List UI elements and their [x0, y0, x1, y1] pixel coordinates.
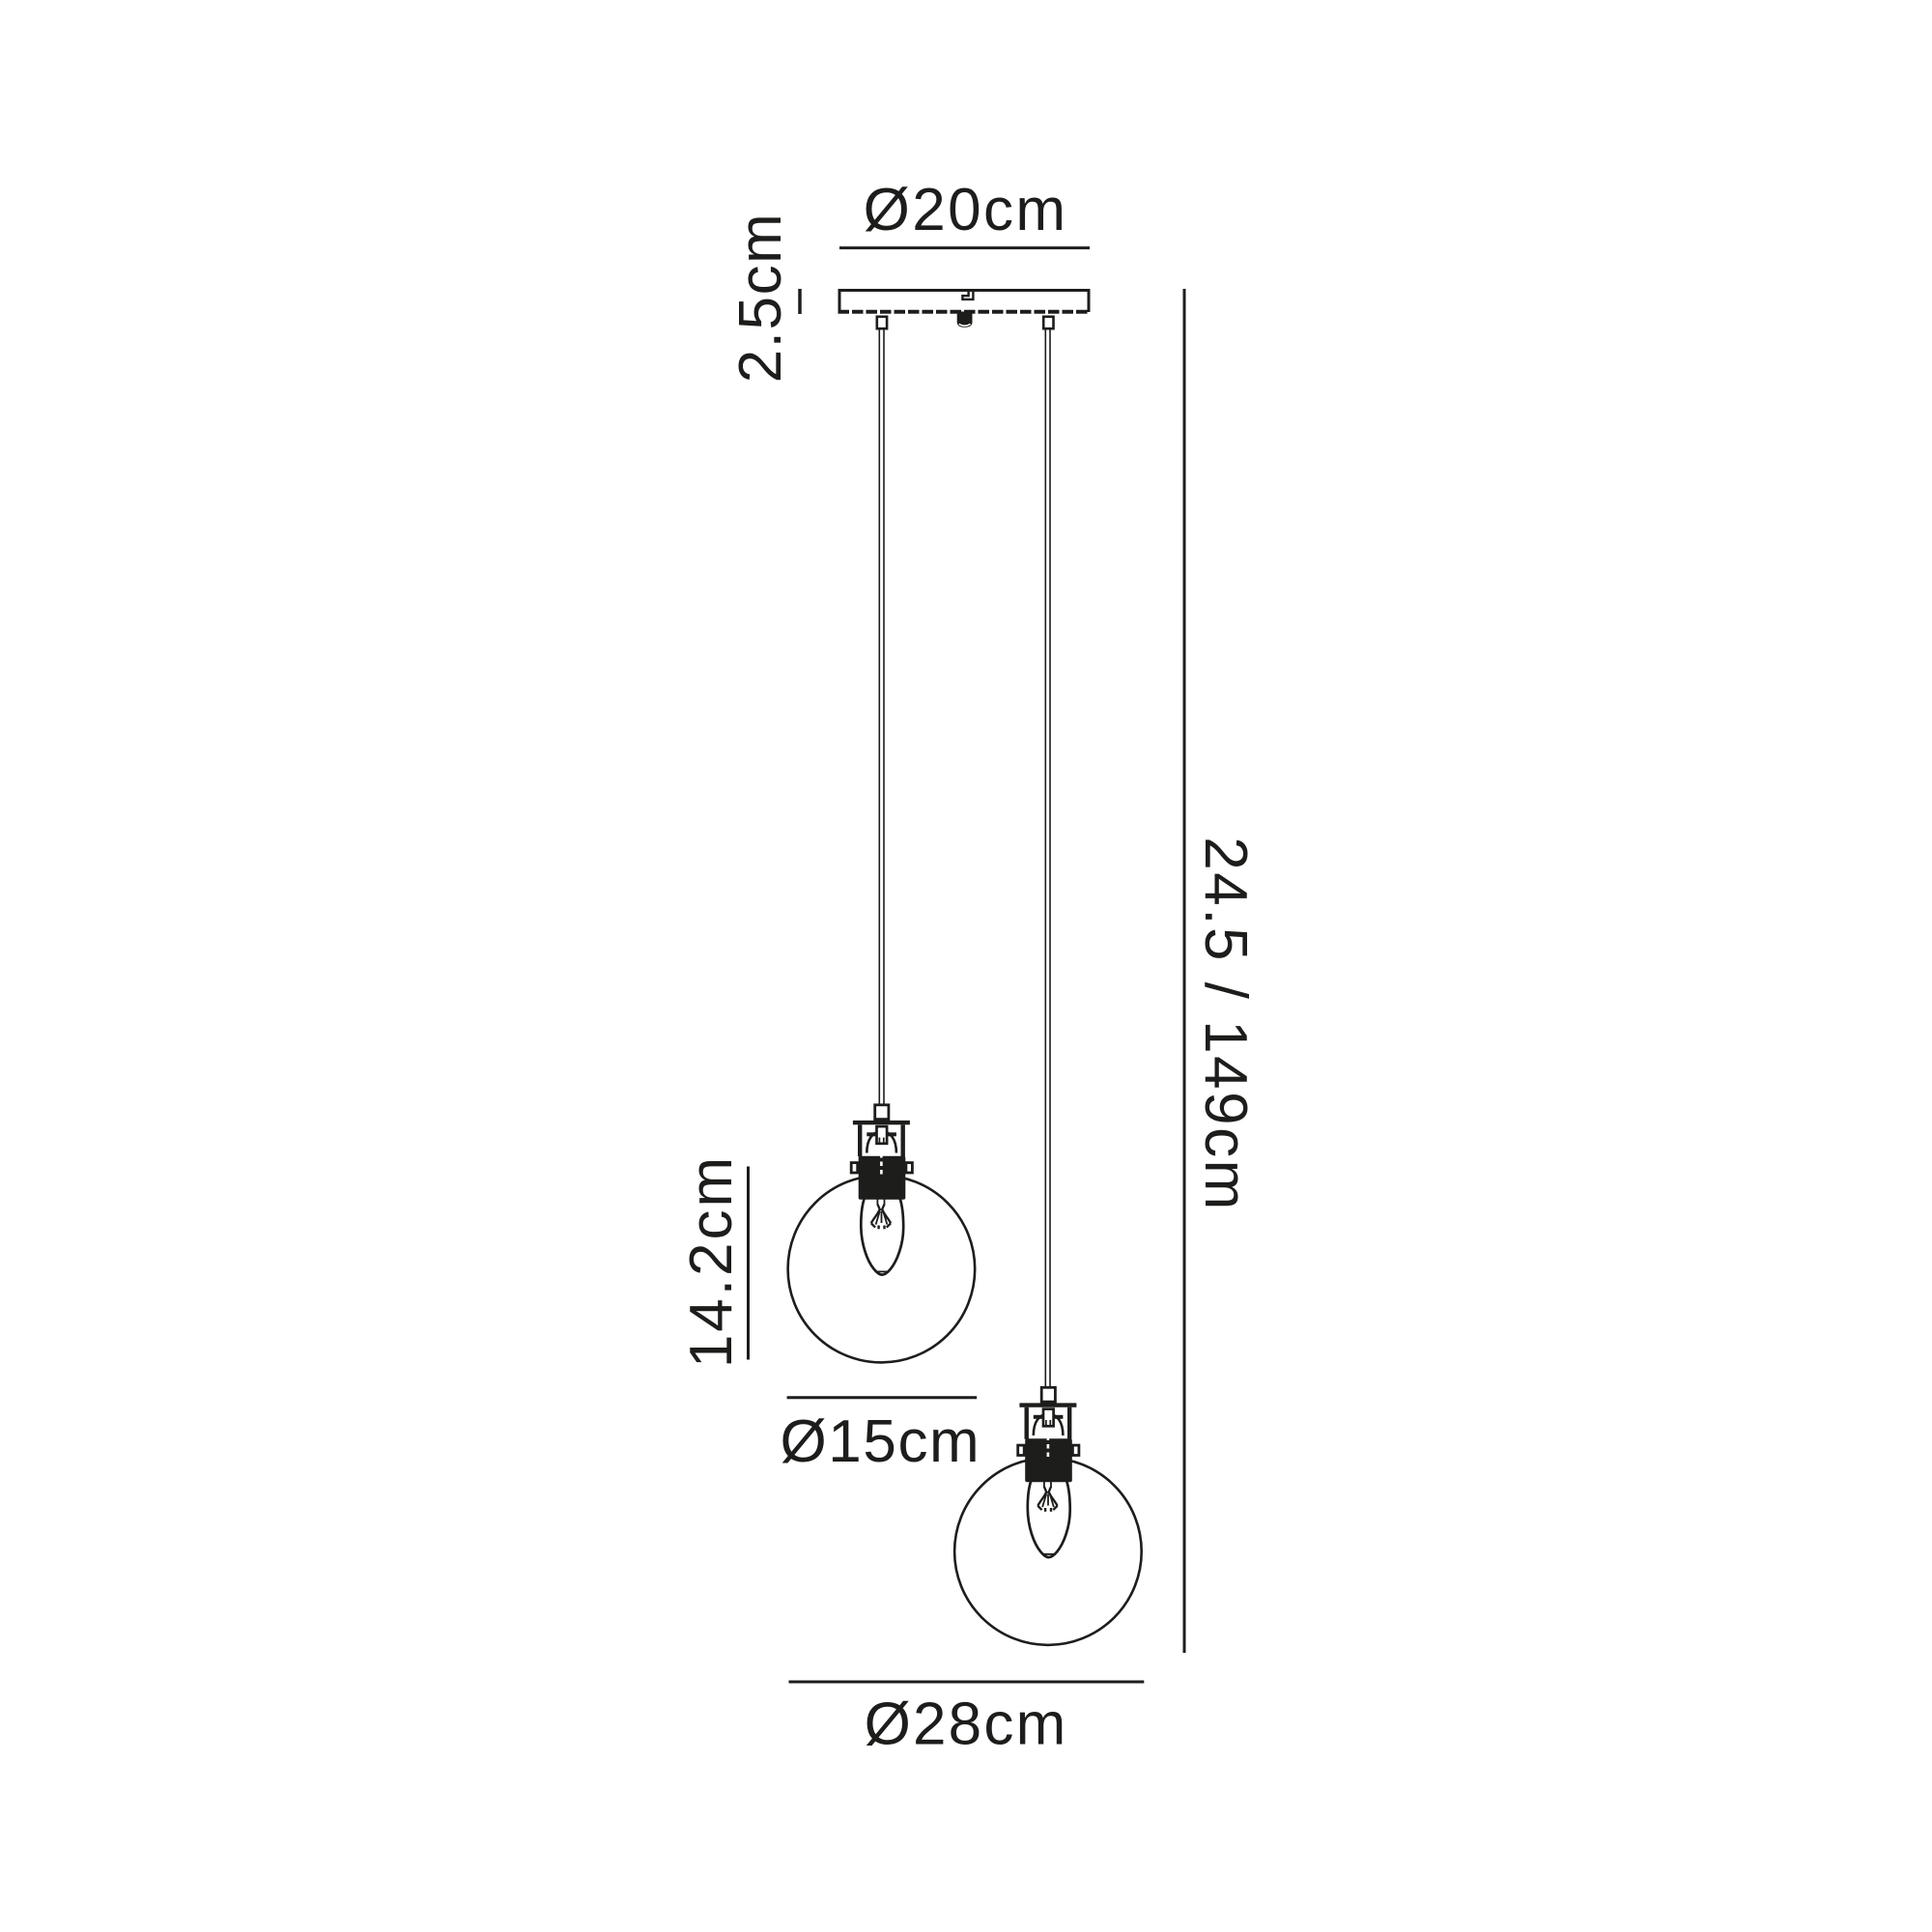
svg-text:Ø28cm: Ø28cm: [865, 1691, 1068, 1758]
svg-text:2.5cm: 2.5cm: [727, 213, 794, 384]
svg-text:24.5 / 149cm: 24.5 / 149cm: [1192, 837, 1259, 1211]
svg-text:14.2cm: 14.2cm: [678, 1154, 745, 1368]
svg-text:Ø15cm: Ø15cm: [780, 1408, 980, 1475]
svg-text:Ø20cm: Ø20cm: [864, 177, 1068, 243]
